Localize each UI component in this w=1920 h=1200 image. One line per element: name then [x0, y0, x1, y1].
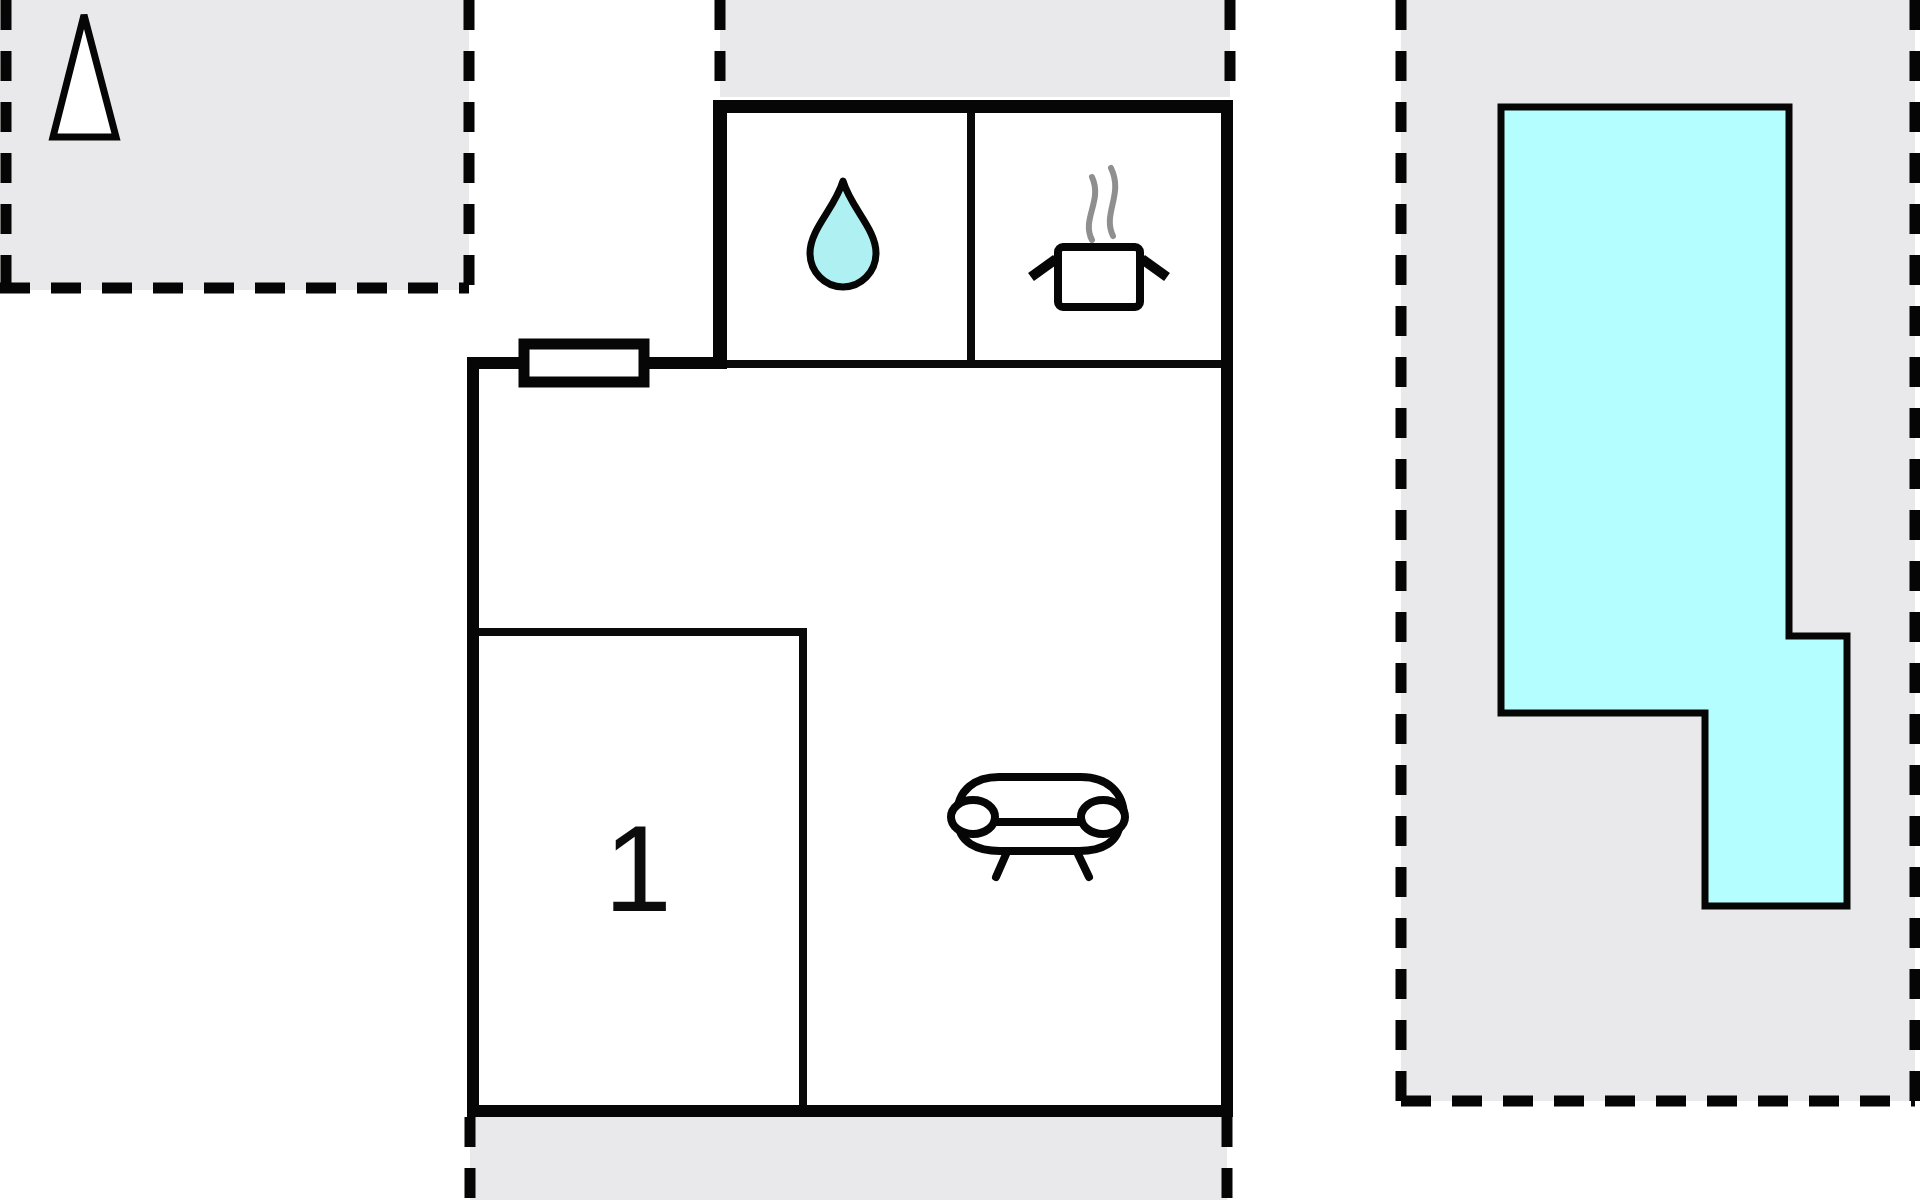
wall-kitchen-bottom — [727, 360, 1221, 368]
steam-icon — [1089, 168, 1115, 240]
wall-main-left — [467, 357, 479, 1117]
sofa-leg-right — [1077, 852, 1089, 877]
sofa-icon — [951, 777, 1125, 877]
window-symbol — [524, 344, 644, 382]
wall-bedroom-right — [799, 628, 807, 1105]
sofa-armrest-left — [951, 800, 995, 834]
room-number-label: 1 — [604, 801, 672, 937]
pot-handle-left — [1031, 259, 1056, 277]
sofa-leg-left — [996, 852, 1007, 877]
wall-kitchen-divider — [967, 113, 975, 360]
water-drop-icon — [810, 181, 876, 287]
sofa-armrest-right — [1081, 800, 1125, 834]
cooking-pot-icon — [1031, 247, 1167, 307]
terrace-top-strip — [720, 0, 1230, 97]
wall-bedroom-top — [479, 628, 807, 636]
steam-wave-left — [1089, 177, 1095, 240]
floorplan-canvas: 1 — [0, 0, 1920, 1200]
terrace-bottom — [470, 1117, 1227, 1200]
terrace-top-left — [0, 0, 469, 290]
steam-wave-right — [1110, 168, 1115, 236]
wall-kitchen-left — [713, 100, 727, 369]
pot-body — [1058, 247, 1140, 307]
wall-kitchen-top — [713, 100, 1233, 113]
pot-handle-right — [1142, 259, 1167, 277]
floorplan-drawing: 1 — [0, 0, 1920, 1200]
wall-main-right — [1221, 100, 1233, 1117]
wall-main-bottom — [467, 1105, 1233, 1117]
